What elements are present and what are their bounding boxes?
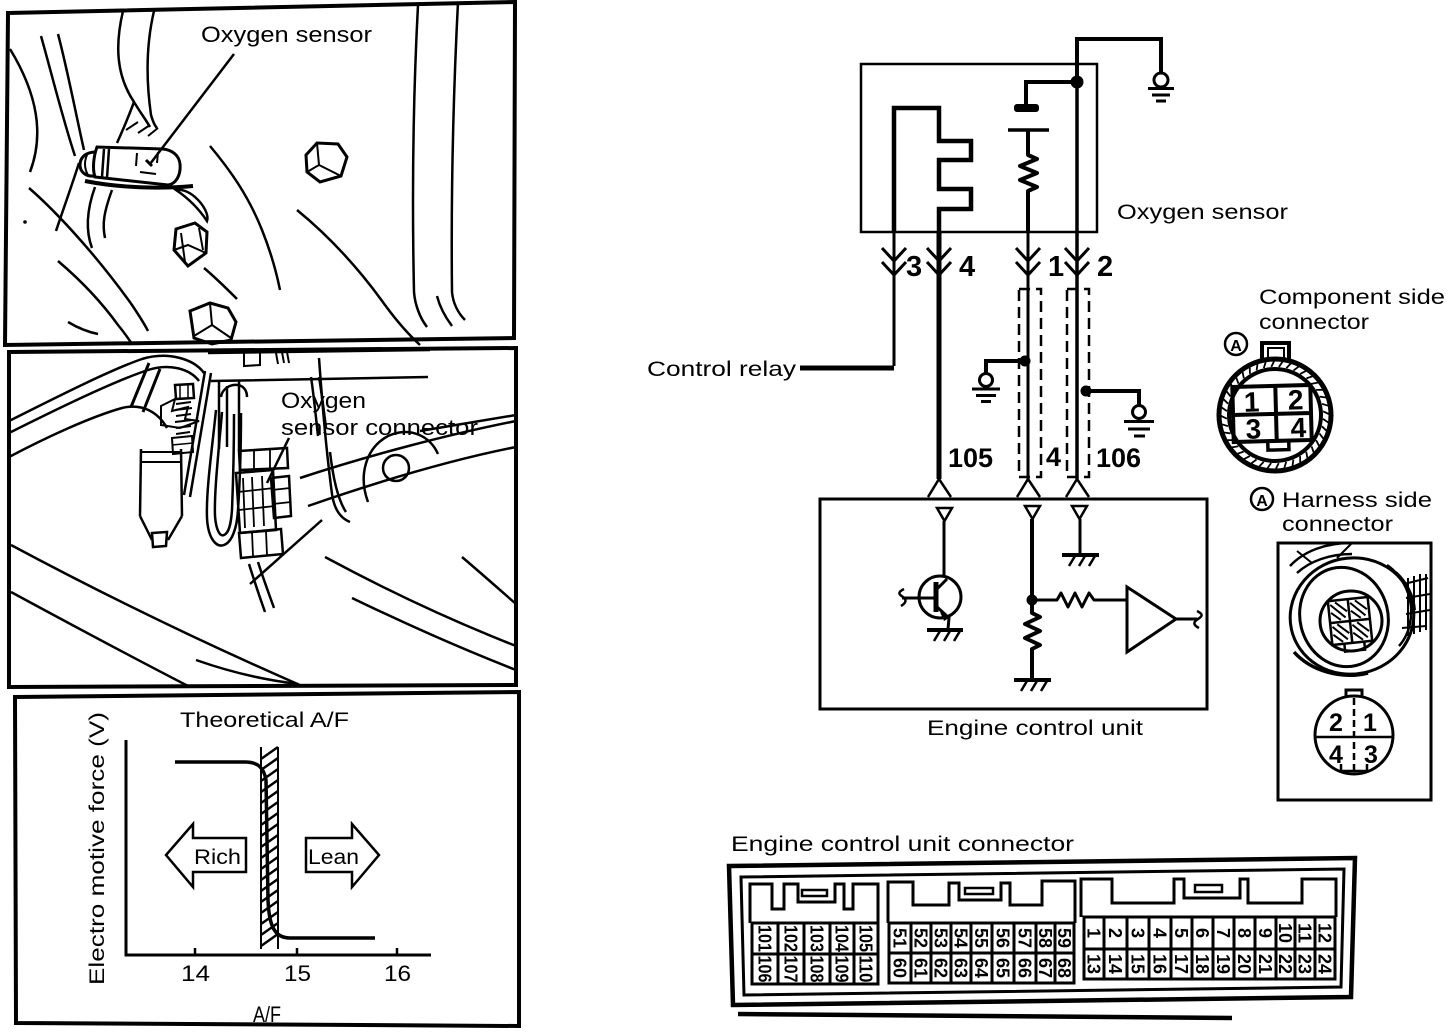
svg-text:13: 13: [1084, 954, 1104, 974]
svg-text:8: 8: [1234, 928, 1254, 938]
svg-text:110: 110: [856, 956, 876, 983]
svg-text:24: 24: [1315, 954, 1335, 974]
svg-text:9: 9: [1255, 928, 1275, 938]
svg-text:Control relay: Control relay: [647, 358, 797, 381]
svg-text:21: 21: [1255, 954, 1275, 974]
svg-text:connector: connector: [1259, 311, 1369, 334]
svg-text:55: 55: [971, 928, 991, 948]
svg-text:68: 68: [1054, 958, 1074, 978]
svg-text:4: 4: [1290, 412, 1307, 443]
svg-text:15: 15: [284, 961, 311, 986]
svg-text:60: 60: [890, 958, 910, 978]
svg-text:4: 4: [959, 251, 975, 283]
svg-text:18: 18: [1192, 954, 1212, 974]
svg-text:A: A: [1230, 338, 1242, 355]
svg-text:52: 52: [911, 928, 931, 948]
svg-text:2: 2: [1097, 251, 1113, 283]
svg-text:109: 109: [832, 956, 852, 983]
svg-text:Component side: Component side: [1259, 286, 1445, 309]
svg-text:4: 4: [1046, 442, 1061, 472]
svg-text:59: 59: [1054, 928, 1074, 948]
svg-text:2: 2: [1105, 928, 1125, 938]
svg-text:Harness side: Harness side: [1282, 489, 1432, 512]
svg-text:64: 64: [971, 958, 991, 978]
svg-text:51: 51: [890, 928, 910, 948]
svg-text:105: 105: [856, 925, 876, 952]
svg-text:67: 67: [1035, 958, 1055, 978]
svg-text:2: 2: [1287, 384, 1303, 415]
svg-text:6: 6: [1192, 928, 1212, 938]
svg-text:Theoretical A/F: Theoretical A/F: [180, 709, 349, 732]
svg-text:3: 3: [1364, 741, 1378, 769]
svg-text:1: 1: [1084, 928, 1104, 938]
svg-text:16: 16: [1150, 954, 1170, 974]
svg-text:106: 106: [1096, 443, 1141, 473]
svg-text:4: 4: [1150, 928, 1170, 938]
svg-text:22: 22: [1275, 954, 1295, 974]
svg-text:53: 53: [931, 928, 951, 948]
svg-text:11: 11: [1295, 923, 1315, 943]
svg-text:108: 108: [807, 956, 827, 983]
svg-text:101: 101: [755, 925, 775, 952]
svg-text:Engine control unit connect: Engine control unit connector: [731, 833, 1074, 856]
svg-text:66: 66: [1015, 958, 1035, 978]
svg-text:10: 10: [1275, 923, 1295, 943]
svg-text:Electro motive force (V): Electro motive force (V): [86, 712, 109, 985]
svg-text:Oxygen sensor: Oxygen sensor: [1117, 201, 1288, 224]
svg-text:102: 102: [781, 925, 801, 952]
svg-text:4: 4: [1329, 741, 1343, 769]
svg-text:62: 62: [931, 958, 951, 978]
svg-text:14: 14: [1105, 954, 1125, 974]
svg-text:Oxygen sensor: Oxygen sensor: [201, 22, 372, 47]
svg-text:connector: connector: [1282, 513, 1393, 536]
svg-text:107: 107: [781, 956, 801, 983]
svg-text:106: 106: [755, 956, 775, 983]
svg-text:Rich: Rich: [194, 846, 241, 869]
svg-text:14: 14: [181, 961, 210, 986]
svg-text:19: 19: [1213, 954, 1233, 974]
svg-text:20: 20: [1234, 954, 1254, 974]
svg-text:104: 104: [832, 925, 852, 952]
svg-text:3: 3: [1245, 413, 1261, 444]
svg-text:54: 54: [951, 928, 971, 948]
svg-text:2: 2: [1329, 709, 1343, 737]
svg-text:23: 23: [1295, 954, 1315, 974]
svg-text:65: 65: [993, 958, 1013, 978]
svg-text:A/F: A/F: [253, 1002, 281, 1027]
svg-text:3: 3: [906, 251, 922, 283]
svg-text:63: 63: [951, 958, 971, 978]
svg-text:103: 103: [807, 925, 827, 952]
svg-text:58: 58: [1035, 928, 1055, 948]
svg-text:Lean: Lean: [308, 846, 359, 869]
svg-text:61: 61: [911, 958, 931, 978]
svg-text:5: 5: [1171, 928, 1191, 938]
svg-text:16: 16: [384, 961, 411, 986]
svg-text:56: 56: [993, 928, 1013, 948]
svg-text:3: 3: [1128, 928, 1148, 938]
svg-text:57: 57: [1015, 928, 1035, 948]
svg-text:1: 1: [1048, 251, 1064, 283]
svg-text:Engine control unit: Engine control unit: [927, 717, 1143, 740]
svg-text:1: 1: [1363, 709, 1377, 737]
svg-text:105: 105: [948, 443, 993, 473]
svg-text:15: 15: [1128, 954, 1148, 974]
svg-text:A: A: [1256, 493, 1268, 510]
svg-text:7: 7: [1213, 928, 1233, 938]
svg-text:17: 17: [1171, 954, 1191, 974]
svg-text:12: 12: [1315, 923, 1335, 943]
